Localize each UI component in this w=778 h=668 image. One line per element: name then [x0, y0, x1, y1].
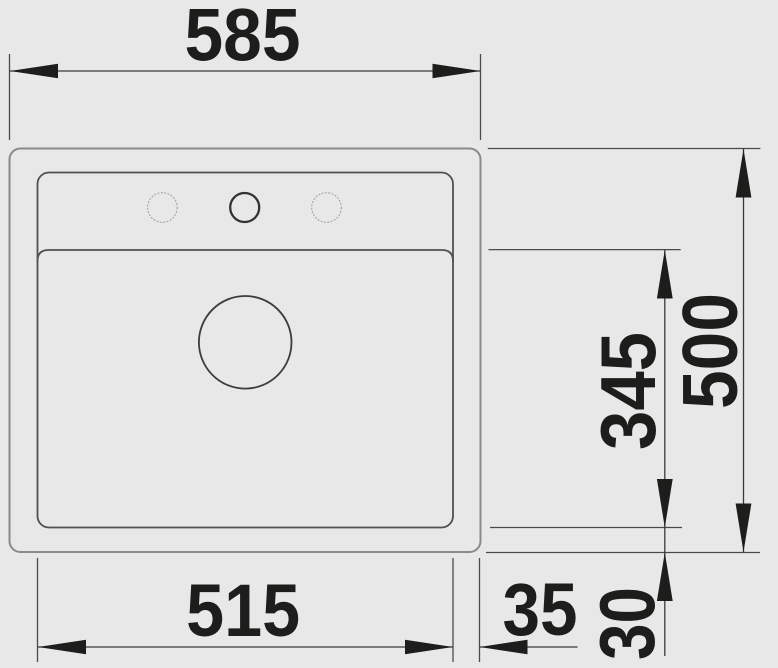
- svg-text:500: 500: [666, 293, 754, 409]
- svg-text:515: 515: [186, 569, 300, 652]
- svg-text:585: 585: [185, 0, 301, 77]
- svg-text:345: 345: [584, 332, 672, 450]
- svg-text:30: 30: [583, 587, 671, 660]
- svg-text:35: 35: [503, 568, 578, 651]
